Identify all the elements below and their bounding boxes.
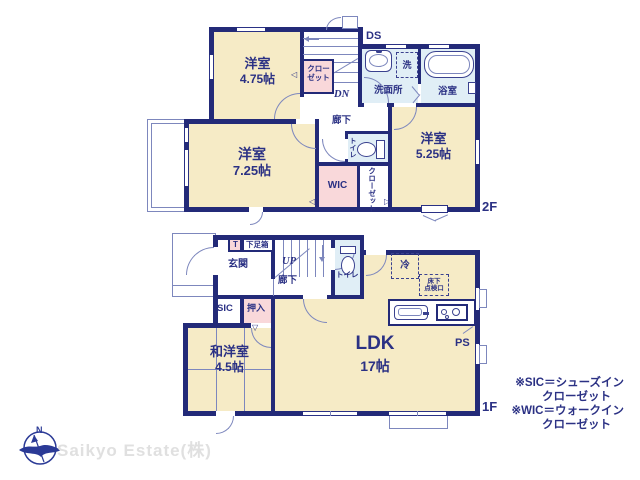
floor2-label: 2F	[482, 200, 497, 215]
shutter-leaf	[479, 289, 487, 308]
floor-hatch-l2: 点検口	[424, 285, 444, 292]
ldk-label: LDK 17帖	[330, 333, 420, 377]
ds-label: DS	[366, 30, 381, 43]
floor1-label: 1F	[482, 400, 497, 415]
opening-marker-icon: ◁	[291, 71, 297, 79]
bath-panel-icon	[468, 82, 476, 94]
toilet-tank-icon	[340, 246, 356, 254]
window	[237, 27, 265, 32]
dn-label: DN	[334, 89, 349, 101]
window-bay	[421, 205, 448, 213]
tatami-room-label: 和洋室 4.5帖	[188, 345, 271, 375]
window-mullion	[330, 411, 331, 416]
bathroom-label: 浴室	[438, 87, 457, 98]
shoe-box: 下足箱	[242, 238, 274, 252]
window	[386, 44, 406, 49]
shutter-leaf	[479, 345, 487, 364]
door-arc	[326, 17, 341, 30]
closet-stairs-label: クローゼット	[303, 65, 334, 82]
genkan-label: 玄関	[228, 259, 248, 271]
wall-segment	[240, 297, 243, 325]
ps-label: PS	[455, 337, 470, 350]
balcony-railing	[151, 123, 185, 208]
bathtub-icon	[424, 51, 474, 78]
door-gap	[364, 103, 387, 107]
toilet-1f-label: トイレ	[336, 271, 359, 280]
door-leaf	[342, 16, 358, 29]
hallway-1f-label: 廊下	[278, 276, 297, 287]
opening-marker-icon: ▷	[384, 198, 390, 206]
opening-marker-icon: ◁	[309, 198, 315, 206]
legend-line: クローゼット	[512, 390, 625, 404]
stove-icon	[436, 304, 468, 321]
closet-2f-label: クローゼット	[367, 167, 376, 212]
fridge-box: 冷	[391, 253, 419, 279]
shoe-box-label: 下足箱	[246, 241, 269, 250]
fridge-label: 冷	[400, 261, 410, 272]
legend-line: ※WIC＝ウォークイン	[512, 404, 625, 418]
floor-hatch-box: 床下 点検口	[419, 274, 449, 296]
legend-line: クローゼット	[512, 418, 625, 432]
door-gap	[300, 97, 304, 119]
wall-segment	[213, 295, 275, 299]
bay-chevron	[423, 215, 436, 222]
floor-hatch-l1: 床下	[428, 278, 441, 285]
step-line	[273, 279, 274, 296]
oshiire-label: 押入	[247, 303, 265, 313]
door-arc	[322, 139, 345, 162]
porch-step	[173, 285, 215, 286]
t-box-label: T	[233, 240, 238, 249]
door-arc	[250, 212, 263, 225]
toilet-bowl-icon	[357, 142, 376, 157]
sink-icon	[365, 50, 392, 72]
wall-segment	[360, 235, 364, 299]
t-box: T	[228, 238, 242, 252]
window	[429, 44, 449, 49]
washer-box: 洗	[396, 52, 418, 78]
toilet-2f-label: トイレ	[348, 137, 356, 158]
wall-segment	[315, 162, 391, 166]
wall-segment	[475, 250, 480, 416]
bedroom-725-label: 洋室 7.25帖	[188, 146, 316, 179]
toilet-tank-icon	[376, 140, 385, 159]
stairs-arrow-icon	[304, 36, 309, 42]
bedroom-525-label: 洋室 5.25帖	[391, 132, 476, 162]
legend-line: ※SIC＝シューズイン	[512, 376, 625, 390]
washer-label: 洗	[402, 60, 411, 70]
wall-segment	[475, 44, 480, 212]
wall-segment	[271, 295, 275, 416]
door-arc	[216, 416, 234, 434]
compass-n-label: N	[36, 425, 43, 435]
bedroom-475-label: 洋室 4.75帖	[212, 57, 303, 87]
hallway-2f-label: 廊下	[332, 116, 351, 127]
floorplan-canvas: 洗 洋室 4.75帖 洋室 7.25帖 洋室 5.25帖 クローゼット 廊下 D…	[0, 0, 640, 480]
washroom-label: 洗面所	[374, 86, 403, 97]
wall-segment	[358, 27, 362, 107]
up-label: UP	[282, 256, 296, 268]
deck-step	[389, 416, 448, 429]
wall-segment	[345, 131, 391, 134]
wic-label: WIC	[317, 180, 358, 192]
legend: ※SIC＝シューズイン クローゼット ※WIC＝ウォークイン クローゼット	[512, 376, 625, 432]
kitchen-sink-icon	[394, 305, 428, 320]
stairs-arrow-icon	[319, 257, 325, 262]
bay-chevron	[435, 214, 448, 221]
company-watermark: Saikyo Estate(株)	[57, 436, 212, 461]
opening-marker-icon: ▽	[252, 324, 258, 332]
sic-label: SIC	[217, 304, 233, 315]
kitchen-counter	[388, 299, 476, 326]
window	[184, 128, 189, 142]
